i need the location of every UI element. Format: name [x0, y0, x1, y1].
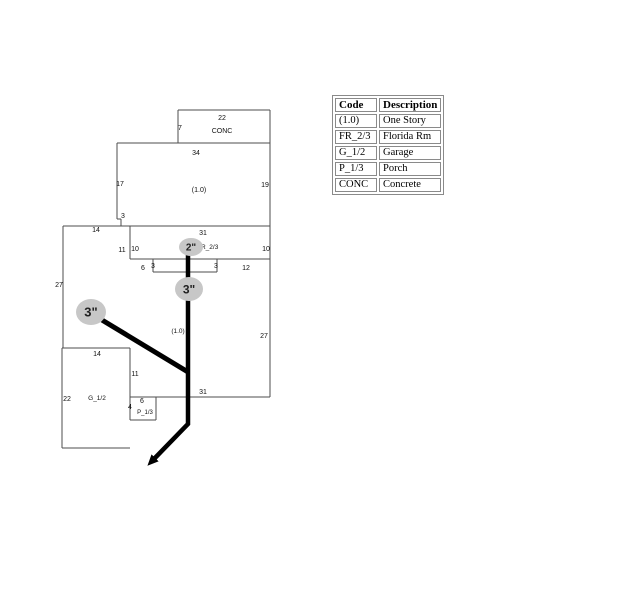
pipe-node-label: 3" [183, 282, 195, 296]
legend-row: G_1/2Garage [335, 146, 441, 160]
pipe-node-label: 3" [84, 305, 97, 320]
dimension-label: 10 [262, 246, 270, 253]
dimension-label: 11 [118, 247, 125, 254]
legend-row: CONCConcrete [335, 178, 441, 192]
legend-header-row: Code Description [335, 98, 441, 112]
legend-table: Code Description (1.0)One StoryFR_2/3Flo… [332, 95, 444, 195]
dimension-label: 27 [260, 333, 268, 340]
dimension-label: 14 [93, 351, 101, 358]
legend-row: FR_2/3Florida Rm [335, 130, 441, 144]
pipe-node-label: 2" [186, 243, 197, 254]
dimension-label: 6 [141, 265, 145, 272]
dimension-label: 3 [214, 263, 218, 270]
dimension-label: 34 [192, 150, 200, 157]
legend-header-code: Code [335, 98, 377, 112]
dimension-label: 3 [151, 263, 155, 270]
area-label: G_1/2 [88, 395, 106, 402]
dimension-label: 22 [218, 115, 226, 122]
legend-code-cell: (1.0) [335, 114, 377, 128]
legend-description-cell: Porch [379, 162, 441, 176]
legend-code-cell: P_1/3 [335, 162, 377, 176]
dimension-label: 3 [121, 213, 125, 220]
dimension-label: 10 [131, 246, 139, 253]
legend-row: P_1/3Porch [335, 162, 441, 176]
dimension-label: 27 [55, 282, 63, 289]
dimension-label: 31 [199, 230, 207, 237]
dimension-label: 12 [242, 265, 250, 272]
legend-header-description: Description [379, 98, 441, 112]
area-label: P_1/3 [137, 410, 153, 416]
legend-description-cell: Concrete [379, 178, 441, 192]
dimension-label: 7 [178, 125, 182, 132]
area-label: (1.0) [192, 187, 206, 194]
dimension-label: 19 [261, 182, 269, 189]
legend-description-cell: Florida Rm [379, 130, 441, 144]
legend-code-cell: FR_2/3 [335, 130, 377, 144]
area-label: CONC [212, 128, 233, 135]
area-label: (1.0) [171, 328, 184, 335]
dimension-label: 31 [199, 389, 207, 396]
legend-row: (1.0)One Story [335, 114, 441, 128]
legend-description-cell: Garage [379, 146, 441, 160]
dimension-label: 6 [140, 398, 144, 405]
legend-code-cell: G_1/2 [335, 146, 377, 160]
legend-code-cell: CONC [335, 178, 377, 192]
dimension-label: 14 [92, 227, 100, 234]
floor-plan-sketch: 227341719314311110633121027271411223164C… [0, 0, 619, 615]
dimension-label: 17 [116, 181, 124, 188]
dimension-label: 4 [128, 404, 132, 411]
dimension-label: 22 [63, 396, 71, 403]
legend-description-cell: One Story [379, 114, 441, 128]
dimension-label: 11 [131, 371, 138, 378]
